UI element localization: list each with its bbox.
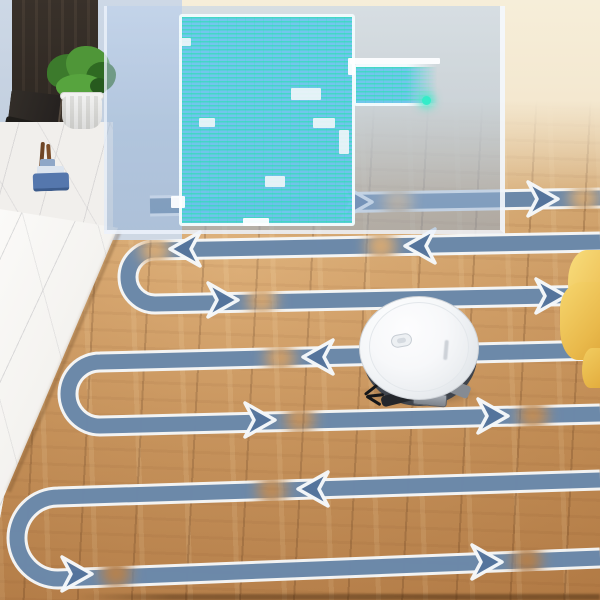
robot-vacuum [357,296,483,408]
robot-position-dot [422,96,431,105]
map-notch [291,88,321,100]
map-notch [313,118,335,128]
map-notch [181,38,191,46]
map-layer [107,6,500,230]
floor-edge-shadow [78,594,600,600]
yellow-blanket-tip [582,348,600,388]
map-overlay-panel [104,6,505,234]
map-notch [199,118,215,127]
map-notch [265,176,285,187]
map-wall [348,58,355,75]
map-wall [243,218,269,226]
map-wall [171,196,185,208]
robot-top-plate [369,302,469,392]
scene [0,0,600,600]
map-notch [339,130,349,154]
map-wall [350,58,440,64]
